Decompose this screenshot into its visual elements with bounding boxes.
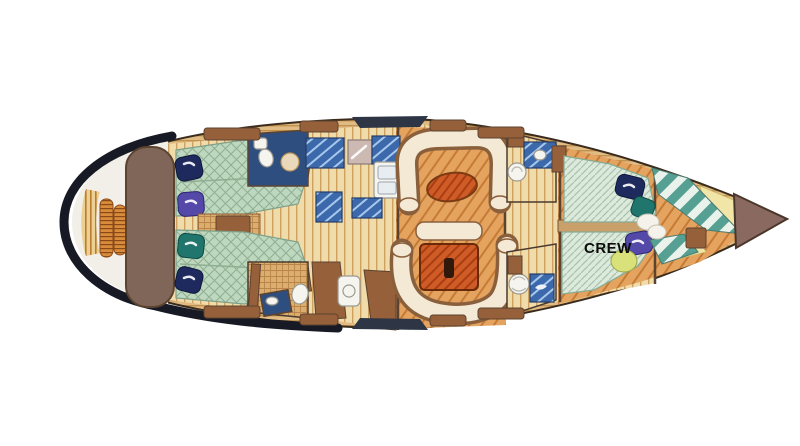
deck-locker-bottom-1: [204, 306, 260, 318]
deck-locker-bottom-3: [430, 315, 466, 326]
towel-aft-head-bottom: [266, 297, 278, 305]
yacht-plan-svg: CREW: [0, 0, 800, 446]
deck-locker-top-1: [204, 128, 260, 140]
table-leaf-slot: [444, 258, 454, 278]
sink-basin-1: [378, 166, 396, 179]
deck-locker-bottom-2: [300, 314, 338, 325]
fwd-head-bottom-locker: [508, 256, 522, 274]
pillow-teal-aft-bottom: [177, 233, 205, 260]
shower-tray-aft-head-top: [281, 153, 299, 171]
settee-top-armrest-left: [399, 198, 419, 212]
stern-ladder: [100, 199, 113, 257]
stern-ladder-inner: [114, 205, 126, 255]
galley-counter-foot: [352, 198, 382, 218]
settee-bottom-armrest-left: [392, 243, 412, 257]
deck-locker-top-4: [478, 127, 524, 138]
pillow-purple-aft-top: [177, 191, 205, 217]
sink-basin-2: [378, 182, 396, 194]
bow-hatch-box: [686, 228, 706, 248]
vanity-aft-head-bottom: [338, 276, 360, 306]
deck-hatch-bottom: [352, 318, 428, 330]
galley-island: [316, 192, 342, 222]
transom-seat: [126, 147, 174, 307]
deck-locker-top-2: [300, 121, 338, 132]
anchor-locker-tip: [734, 194, 787, 248]
galley-counter-left: [306, 138, 344, 168]
deck-locker-bottom-4: [478, 308, 524, 319]
yacht-layout-illustration: CREW: [0, 0, 800, 446]
deck-locker-top-3: [430, 120, 466, 131]
pillow-navy-aft-top: [174, 154, 204, 183]
toilet-fwd-head-top: [508, 163, 526, 181]
crew-cabin-label: CREW: [584, 240, 632, 257]
deck-hatch-top: [352, 116, 428, 128]
sink-fwd-head-top: [534, 150, 546, 160]
bow-cushion-2: [648, 225, 666, 239]
salon-bench: [416, 222, 482, 240]
